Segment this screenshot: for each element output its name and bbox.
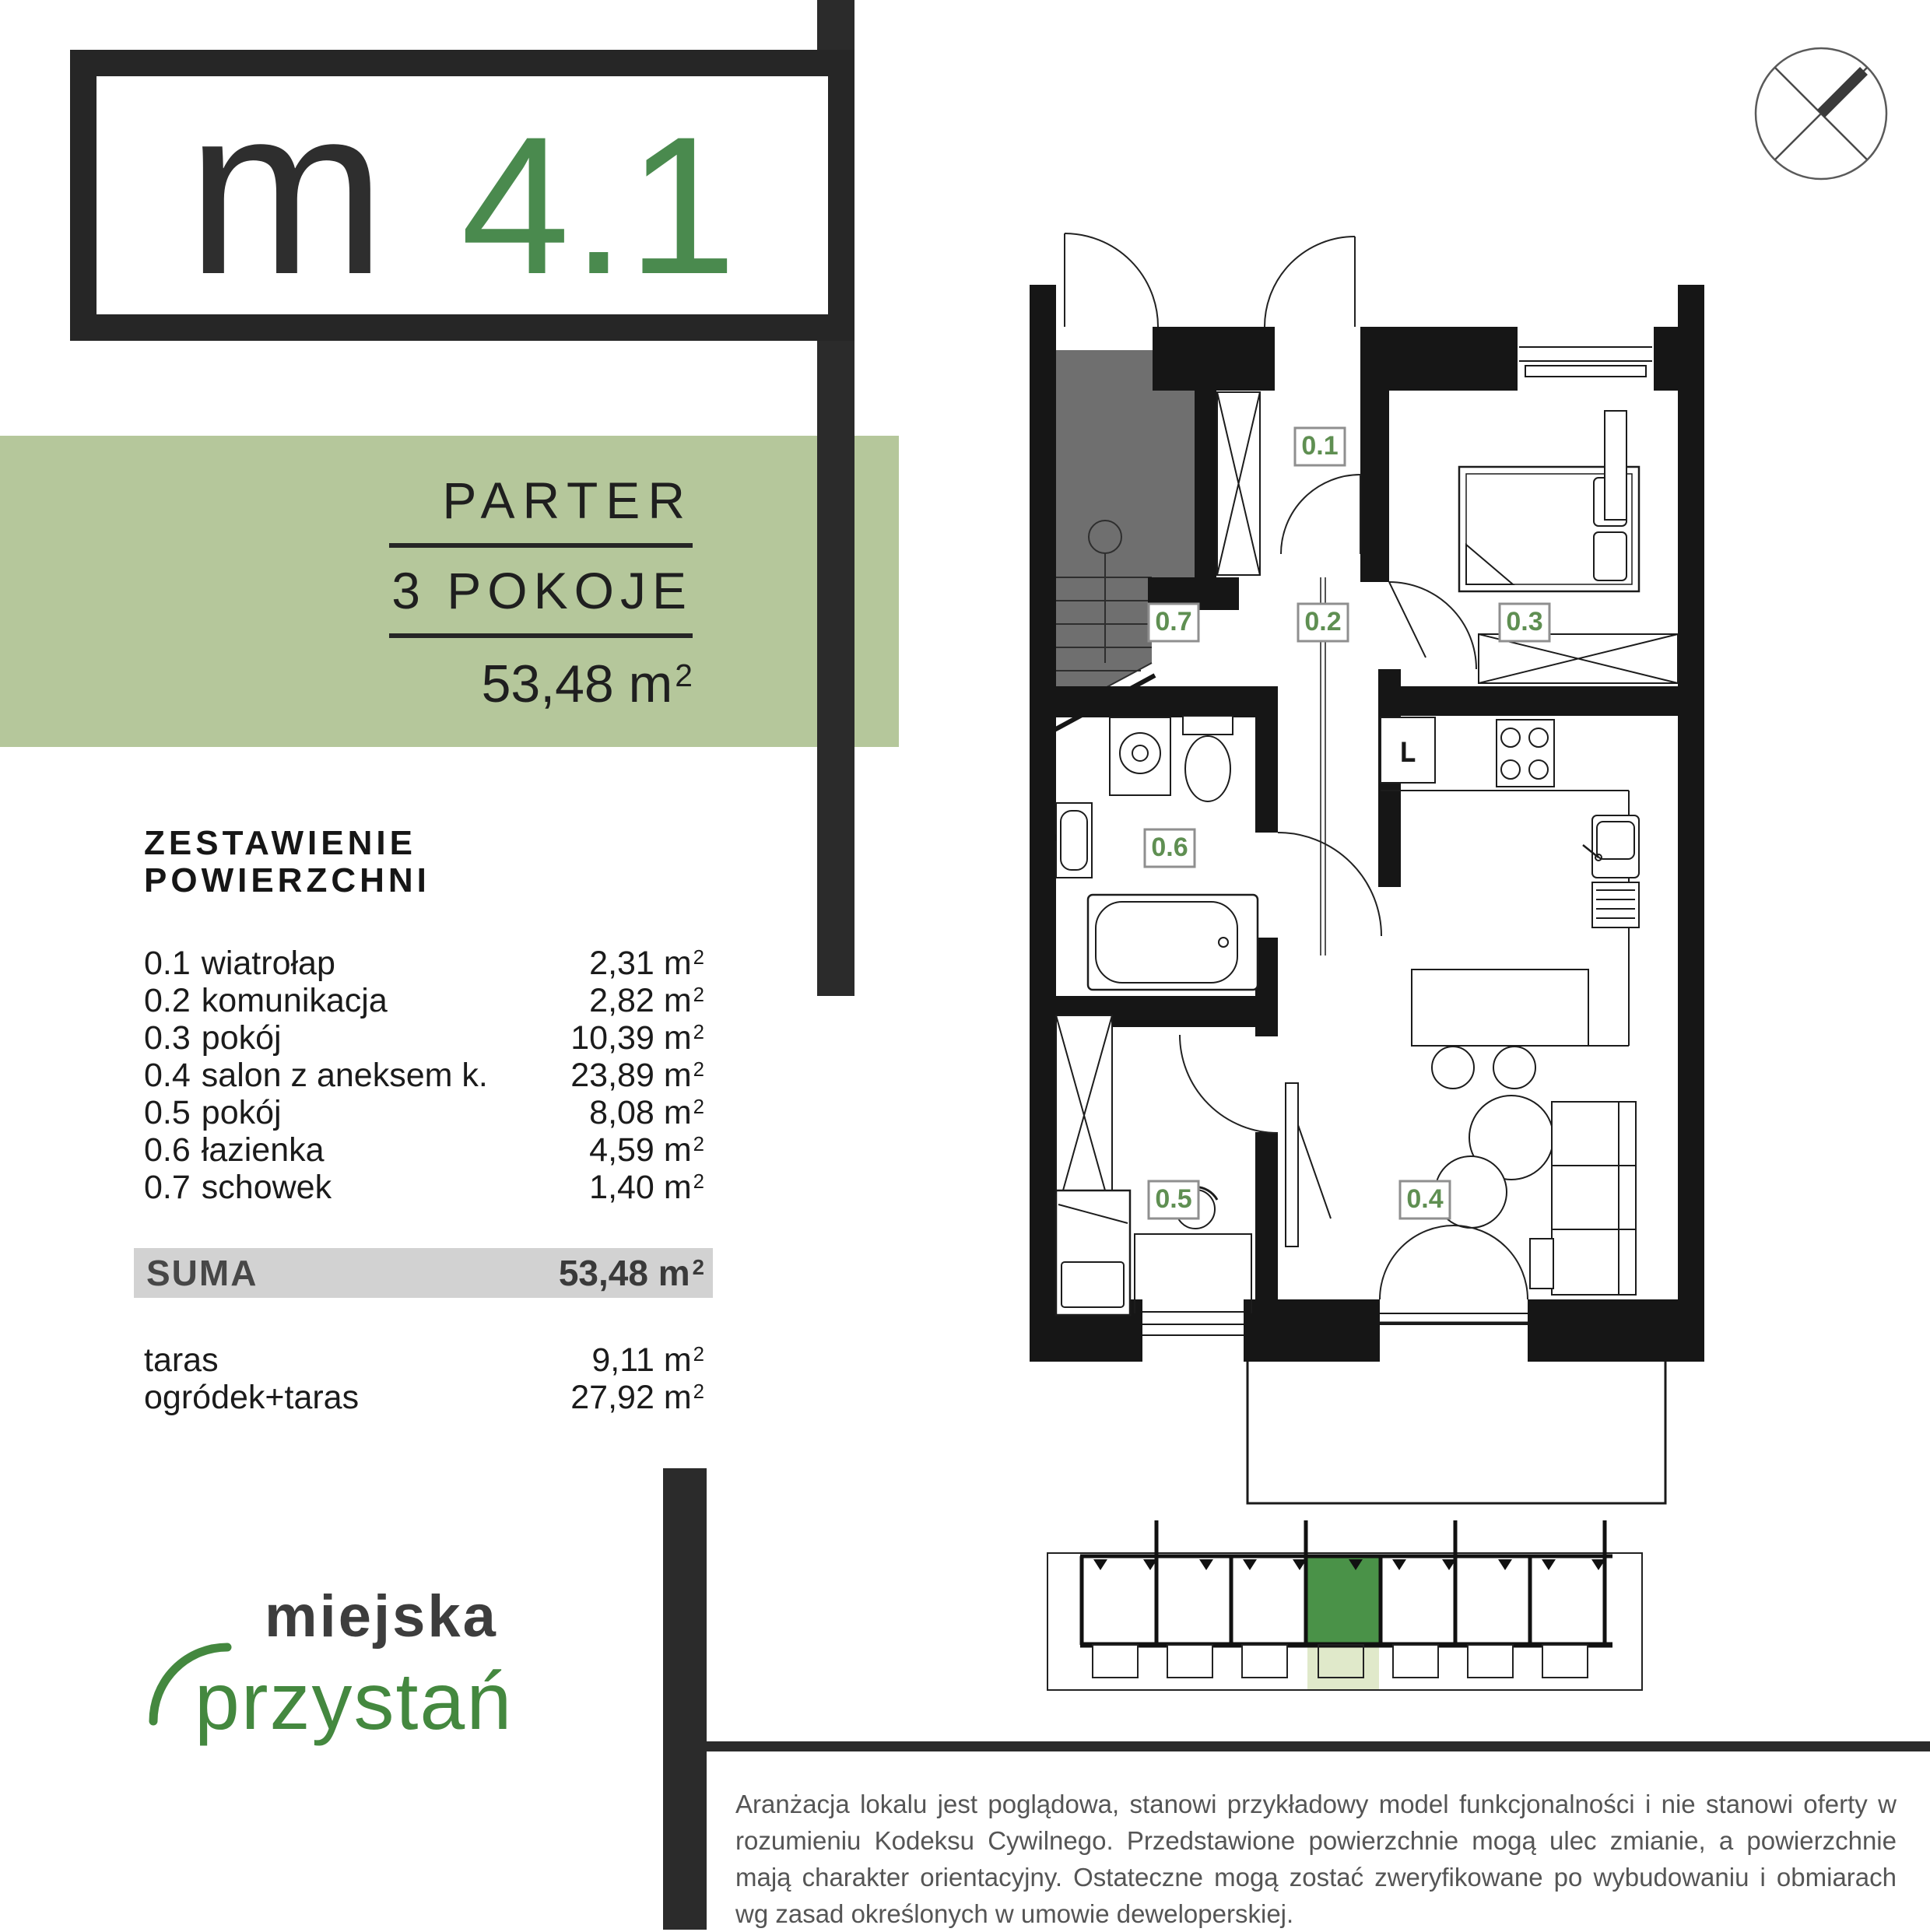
brand-name-bottom: przystań (195, 1656, 513, 1748)
svg-text:0.5: 0.5 (1155, 1184, 1191, 1214)
toilet (1183, 716, 1233, 801)
svg-text:0.6: 0.6 (1151, 833, 1188, 862)
row-name: 0.1wiatrołap (144, 945, 335, 983)
row-code: 0.1 (144, 945, 191, 982)
kitchen-island (1412, 970, 1588, 1046)
room-label-0-7: 0.7 (1149, 604, 1198, 641)
row-unit-sup: 2 (693, 984, 704, 1006)
band-divider (389, 633, 693, 638)
row-code: 0.7 (144, 1169, 191, 1206)
row-name: 0.5pokój (144, 1094, 282, 1132)
svg-text:0.7: 0.7 (1155, 607, 1191, 636)
row-room: ogródek+taras (144, 1379, 359, 1417)
row-room: taras (144, 1341, 219, 1380)
stool (1432, 1047, 1474, 1089)
row-unit: m (664, 1094, 692, 1131)
table-rows: 0.1wiatrołap2,31 m2 0.2komunikacja2,82 m… (134, 945, 713, 1206)
row-unit-sup: 2 (693, 947, 704, 969)
row-value: 2,82 m2 (589, 982, 704, 1020)
row-unit-sup: 2 (693, 1344, 704, 1366)
washing-machine (1110, 717, 1170, 795)
row-room: schowek (202, 1169, 332, 1206)
door-arc (1278, 833, 1381, 936)
row-unit-sup: 2 (693, 1134, 704, 1155)
footer-divider (707, 1741, 1930, 1751)
row-area: 10,39 (570, 1019, 654, 1057)
unit-title: m 4.1 (187, 71, 739, 310)
door-arc (1265, 237, 1355, 327)
row-room: salon z aneksem k. (202, 1057, 488, 1094)
room-label-0-3: 0.3 (1500, 604, 1549, 641)
area-label: 53,48 m2 (0, 650, 693, 724)
row-code: 0.6 (144, 1131, 191, 1169)
door-arc (1281, 475, 1360, 554)
table-row: 0.4salon z aneksem k.23,89 m2 (134, 1057, 713, 1094)
row-code: 0.3 (144, 1019, 191, 1057)
kitchen-sink (1583, 815, 1639, 878)
row-unit-sup: 2 (693, 1381, 704, 1403)
row-code: 0.5 (144, 1094, 191, 1131)
row-area: 1,40 (589, 1169, 654, 1206)
stove (1497, 720, 1554, 787)
area-unit-sup: 2 (675, 657, 693, 693)
row-unit: m (664, 982, 692, 1019)
row-name: 0.2komunikacja (144, 982, 388, 1020)
table-row: 0.1wiatrołap2,31 m2 (134, 945, 713, 982)
suma-area: 53,48 (559, 1253, 648, 1293)
unit-card: m 4.1 (70, 50, 854, 341)
room-label-0-1: 0.1 (1295, 428, 1345, 465)
row-unit: m (664, 945, 692, 982)
extra-rows: taras9,11 m2 ogródek+taras27,92 m2 (134, 1341, 713, 1416)
brand-logo: miejska przystań (117, 1572, 599, 1805)
table-row: 0.6łazienka4,59 m2 (134, 1131, 713, 1169)
row-unit: m (664, 1019, 692, 1057)
row-value: 9,11 m2 (591, 1341, 704, 1380)
closet-x-vestibule (1217, 392, 1260, 575)
row-unit: m (664, 1131, 692, 1169)
footer-vertical-bar (663, 1468, 707, 1930)
area-table: ZESTAWIENIE POWIERZCHNI 0.1wiatrołap2,31… (134, 825, 713, 1416)
row-code: 0.4 (144, 1057, 191, 1094)
staircase (1054, 350, 1195, 730)
band-divider (389, 543, 693, 548)
row-value: 1,40 m2 (589, 1169, 704, 1207)
row-name: 0.3pokój (144, 1019, 282, 1057)
fridge: L (1381, 717, 1435, 783)
row-unit-sup: 2 (693, 1022, 704, 1043)
row-room: łazienka (202, 1131, 325, 1169)
highlighted-unit (1307, 1556, 1379, 1645)
row-room: pokój (202, 1019, 282, 1057)
door-arc (1180, 1035, 1278, 1133)
row-unit: m (664, 1169, 692, 1206)
extra-row-taras: taras9,11 m2 (134, 1341, 713, 1379)
door-leaf (1389, 582, 1426, 657)
svg-text:0.3: 0.3 (1506, 607, 1542, 636)
svg-text:0.1: 0.1 (1301, 431, 1338, 461)
row-name: 0.6łazienka (144, 1131, 325, 1169)
row-unit: m (664, 1379, 692, 1416)
kitchen-drainer (1592, 882, 1639, 927)
tv-unit (1286, 1083, 1331, 1247)
area-value: 53,48 (482, 654, 614, 714)
row-unit-sup: 2 (693, 1059, 704, 1081)
row-value: 4,59 m2 (589, 1131, 704, 1169)
row-unit: m (664, 1057, 692, 1094)
suma-value: 53,48 m2 (559, 1252, 704, 1294)
site-plan (1035, 1517, 1658, 1743)
room-label-0-6: 0.6 (1145, 829, 1195, 867)
row-area: 23,89 (570, 1057, 654, 1094)
row-area: 9,11 (591, 1341, 654, 1379)
table-row: 0.3pokój10,39 m2 (134, 1019, 713, 1057)
shelf (1605, 411, 1626, 520)
door-arc (1065, 233, 1158, 327)
rooms-label: 3 POKOJE (0, 560, 693, 621)
suma-row: SUMA 53,48 m2 (134, 1248, 713, 1298)
row-room: pokój (202, 1094, 282, 1131)
table-row: 0.5pokój8,08 m2 (134, 1094, 713, 1131)
wardrobe-x-room05 (1056, 1015, 1112, 1215)
area-unit: m (629, 654, 673, 714)
row-unit-sup: 2 (693, 1096, 704, 1118)
row-area: 2,31 (589, 945, 654, 982)
floor-plan: L (1016, 179, 1728, 1533)
table-row: 0.2komunikacja2,82 m2 (134, 982, 713, 1019)
disclaimer-text: Aranżacja lokalu jest poglądowa, stanowi… (735, 1786, 1897, 1932)
suma-unit-sup: 2 (693, 1255, 704, 1279)
extra-row-ogrodek: ogródek+taras27,92 m2 (134, 1379, 713, 1416)
row-unit: m (664, 1341, 692, 1379)
desk (1135, 1234, 1251, 1313)
stool (1493, 1047, 1535, 1089)
svg-text:0.4: 0.4 (1406, 1184, 1443, 1214)
unit-number: 4.1 (461, 108, 738, 304)
row-area: 2,82 (589, 982, 654, 1019)
row-name: 0.4salon z aneksem k. (144, 1057, 488, 1095)
table-title: ZESTAWIENIE POWIERZCHNI (134, 825, 713, 899)
table-row: 0.7schowek1,40 m2 (134, 1169, 713, 1206)
room-label-0-5: 0.5 (1149, 1181, 1198, 1218)
kitchen: L (1381, 717, 1639, 1089)
fridge-label: L (1401, 738, 1416, 767)
door-arc (1389, 582, 1476, 669)
row-name: 0.7schowek (144, 1169, 332, 1207)
brand-name-top: miejska (265, 1583, 498, 1650)
row-value: 2,31 m2 (589, 945, 704, 983)
single-bed (1056, 1190, 1130, 1315)
row-room: wiatrołap (202, 945, 335, 982)
row-unit-sup: 2 (693, 1171, 704, 1193)
summary-band: PARTER 3 POKOJE 53,48 m2 (0, 436, 899, 747)
french-door-arc (1380, 1225, 1454, 1299)
floor-label: PARTER (0, 470, 693, 531)
row-value: 10,39 m2 (570, 1019, 704, 1057)
row-value: 27,92 m2 (570, 1379, 704, 1417)
row-value: 23,89 m2 (570, 1057, 704, 1095)
row-room: komunikacja (202, 982, 388, 1019)
suma-unit: m (658, 1253, 690, 1293)
bathtub (1088, 895, 1258, 990)
svg-text:0.2: 0.2 (1304, 607, 1341, 636)
row-area: 4,59 (589, 1131, 654, 1169)
row-code: 0.2 (144, 982, 191, 1019)
unit-letter: m (187, 71, 387, 310)
room-label-0-2: 0.2 (1298, 604, 1348, 641)
row-value: 8,08 m2 (589, 1094, 704, 1132)
french-door-arc (1454, 1225, 1528, 1299)
room-label-0-4: 0.4 (1400, 1181, 1450, 1218)
window-sill (1525, 366, 1646, 377)
row-area: 27,92 (570, 1379, 654, 1416)
suma-label: SUMA (146, 1252, 258, 1294)
row-area: 8,08 (589, 1094, 654, 1131)
compass-icon (1749, 44, 1893, 187)
living-room-furniture (1286, 1083, 1636, 1295)
